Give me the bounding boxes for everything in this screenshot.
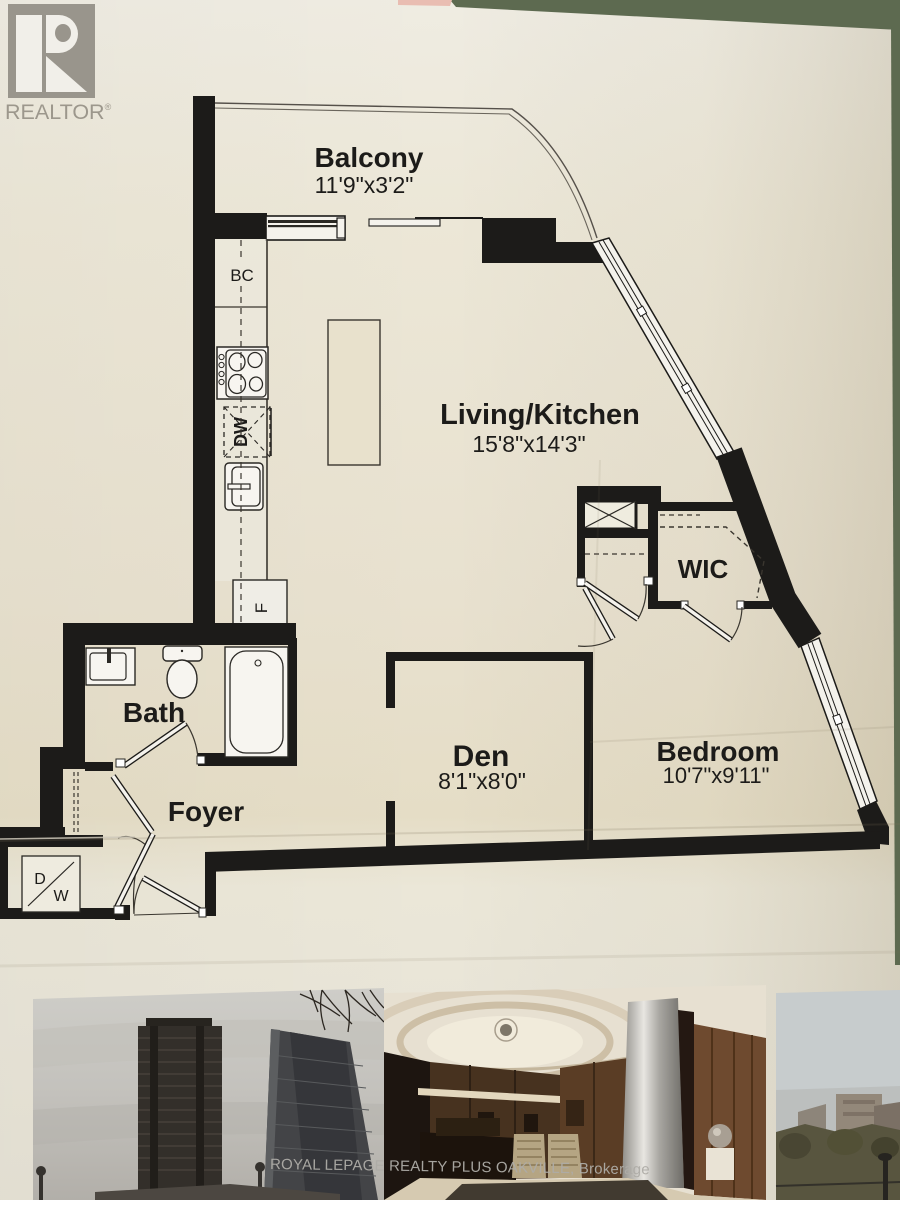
svg-text:F: F	[252, 603, 271, 613]
svg-text:D: D	[34, 871, 46, 888]
svg-text:Living/Kitchen: Living/Kitchen	[440, 399, 640, 431]
svg-text:8'1"x8'0": 8'1"x8'0"	[438, 768, 526, 794]
svg-text:Foyer: Foyer	[168, 796, 244, 827]
svg-text:15'8"x14'3": 15'8"x14'3"	[472, 431, 585, 457]
svg-text:REALTOR®: REALTOR®	[5, 100, 112, 124]
svg-text:BC: BC	[230, 266, 254, 285]
svg-text:Bath: Bath	[123, 697, 185, 728]
svg-text:Balcony: Balcony	[315, 142, 424, 173]
svg-text:11'9"x3'2": 11'9"x3'2"	[315, 172, 414, 198]
svg-text:WIC: WIC	[678, 554, 729, 584]
svg-text:W: W	[53, 888, 69, 905]
svg-text:10'7"x9'11": 10'7"x9'11"	[663, 763, 770, 788]
